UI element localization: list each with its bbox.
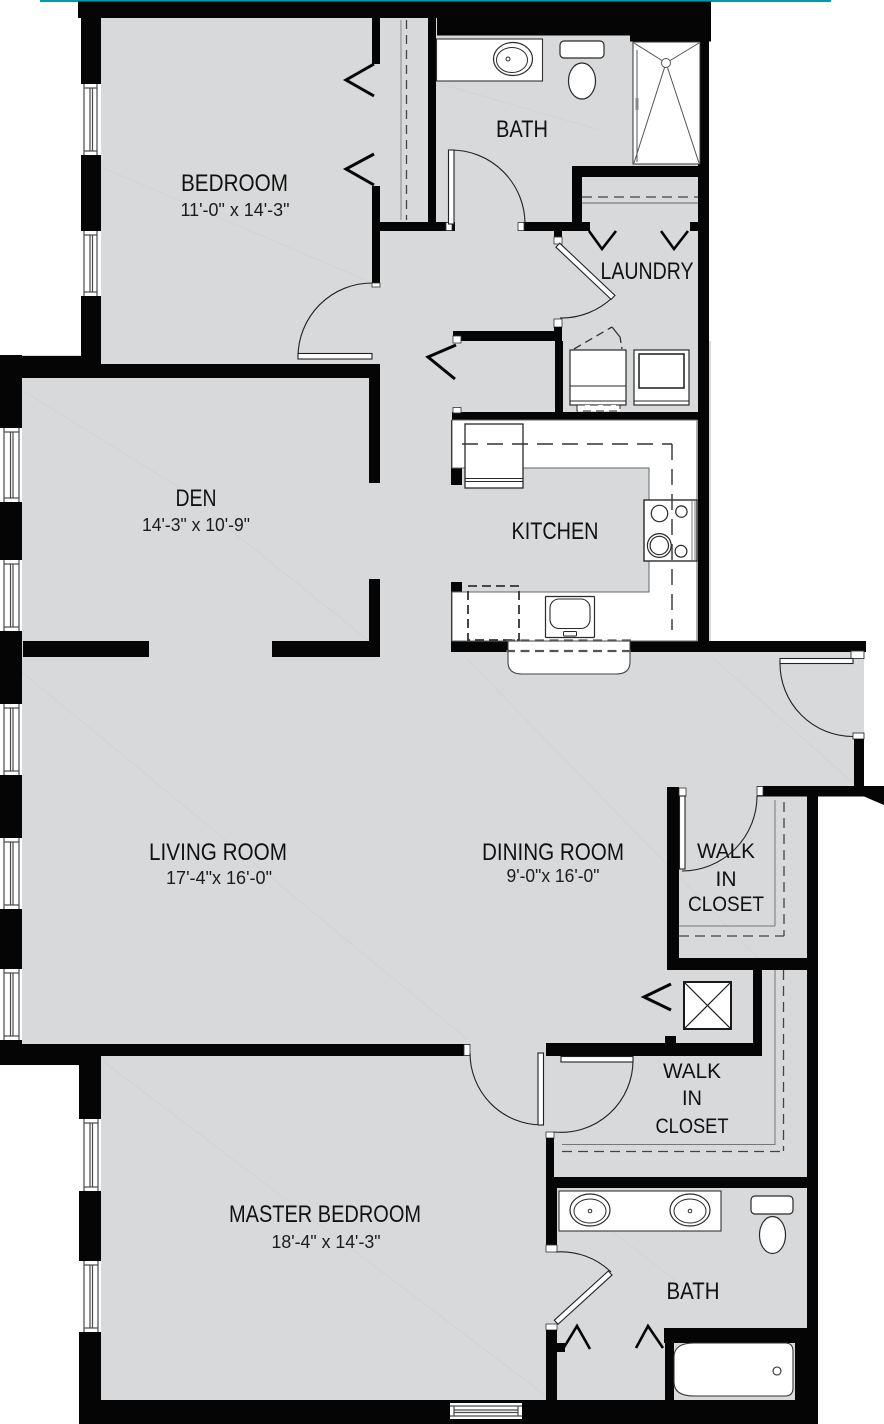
svg-text:IN: IN [716, 867, 737, 891]
svg-text:IN: IN [682, 1086, 702, 1110]
svg-text:18'-4" x 14'-3": 18'-4" x 14'-3" [272, 1232, 381, 1252]
svg-text:17'-4"x 16'-0": 17'-4"x 16'-0" [166, 868, 272, 888]
svg-text:LIVING ROOM: LIVING ROOM [149, 839, 287, 866]
svg-text:LAUNDRY: LAUNDRY [601, 258, 694, 285]
svg-text:MASTER BEDROOM: MASTER BEDROOM [229, 1201, 421, 1228]
svg-text:11'-0" x 14'-3": 11'-0" x 14'-3" [181, 200, 290, 220]
svg-text:KITCHEN: KITCHEN [512, 518, 599, 545]
svg-text:CLOSET: CLOSET [688, 892, 764, 916]
svg-text:WALK: WALK [697, 839, 756, 863]
svg-text:DEN: DEN [176, 485, 217, 512]
svg-text:WALK: WALK [663, 1059, 722, 1083]
svg-text:DINING ROOM: DINING ROOM [482, 839, 624, 866]
svg-text:BEDROOM: BEDROOM [181, 170, 288, 197]
svg-text:BATH: BATH [667, 1278, 720, 1305]
svg-text:CLOSET: CLOSET [656, 1114, 729, 1138]
svg-text:9'-0"x 16'-0": 9'-0"x 16'-0" [507, 866, 600, 886]
svg-text:14'-3" x 10'-9": 14'-3" x 10'-9" [142, 515, 250, 535]
svg-text:BATH: BATH [496, 116, 548, 143]
